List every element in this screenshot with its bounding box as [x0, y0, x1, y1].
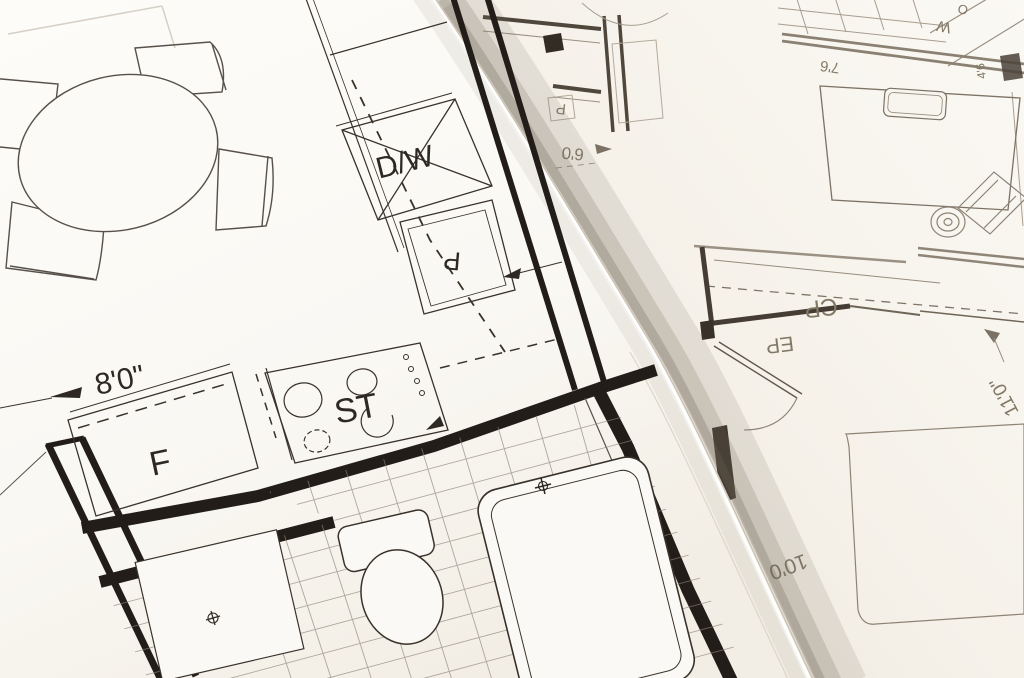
nightstand-dark: [1000, 53, 1023, 81]
closet-label: CP: [803, 292, 839, 323]
floor-plan-canvas: CP EP P 6'0 7'6: [0, 0, 1024, 678]
panel-label: EP: [764, 331, 795, 357]
dim-4-6: 4'6: [973, 62, 989, 80]
fixture-dark: [543, 33, 564, 53]
pillow: [883, 88, 947, 120]
sink-label: P: [442, 245, 462, 276]
dim-7-6: 7'6: [819, 57, 841, 77]
stove-label: ST: [331, 386, 381, 432]
floor-plan-photo: CP EP P 6'0 7'6: [0, 0, 1024, 678]
